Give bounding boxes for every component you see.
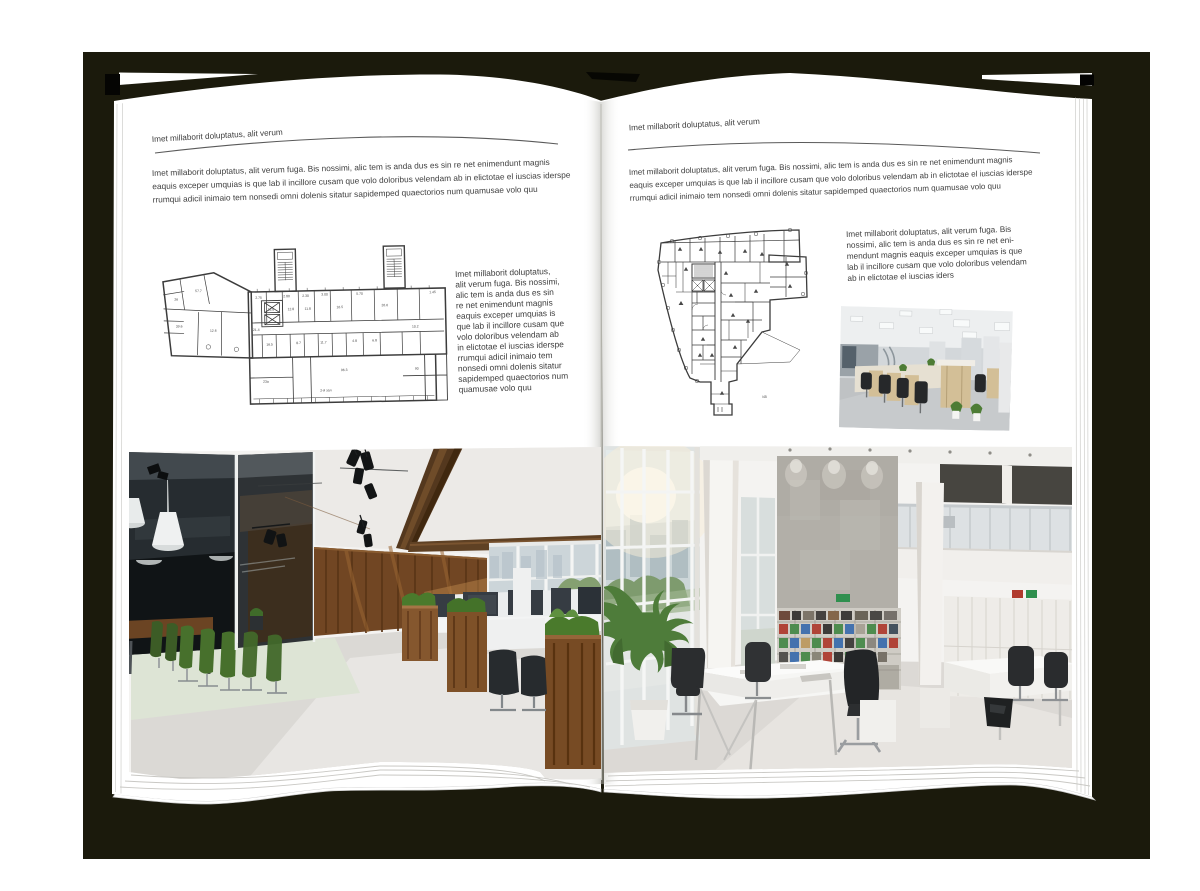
svg-text:2.80: 2.80 (283, 294, 290, 298)
svg-text:8.7: 8.7 (296, 341, 301, 345)
svg-text:4.8: 4.8 (352, 339, 357, 343)
svg-text:23a: 23a (263, 380, 269, 384)
svg-text:5.70: 5.70 (356, 292, 363, 296)
svg-text:/45: /45 (762, 395, 767, 399)
svg-text:11.8: 11.8 (305, 307, 312, 311)
svg-text:96.3: 96.3 (341, 368, 348, 372)
svg-text:2.30: 2.30 (302, 294, 309, 298)
svg-text:2.75: 2.75 (255, 296, 262, 300)
svg-text:12.8: 12.8 (288, 307, 295, 311)
svg-text:16.5: 16.5 (266, 343, 273, 347)
svg-text:13.8: 13.8 (268, 308, 275, 312)
svg-text:21.4: 21.4 (253, 328, 260, 332)
svg-text:1.45: 1.45 (429, 290, 436, 294)
svg-text:2-й зал: 2-й зал (320, 388, 331, 392)
svg-text:39.6: 39.6 (176, 324, 183, 328)
svg-text:26: 26 (174, 298, 178, 302)
svg-text:16.5: 16.5 (336, 305, 343, 309)
svg-text:11.7: 11.7 (320, 340, 327, 344)
svg-text:6.8: 6.8 (372, 338, 377, 342)
svg-text:12.6: 12.6 (210, 329, 217, 333)
svg-text:26.6: 26.6 (381, 303, 388, 307)
svg-text:90: 90 (415, 367, 419, 371)
svg-text:10.2: 10.2 (412, 325, 419, 329)
svg-text:57.7: 57.7 (195, 289, 202, 293)
svg-text:3.00: 3.00 (321, 292, 328, 296)
